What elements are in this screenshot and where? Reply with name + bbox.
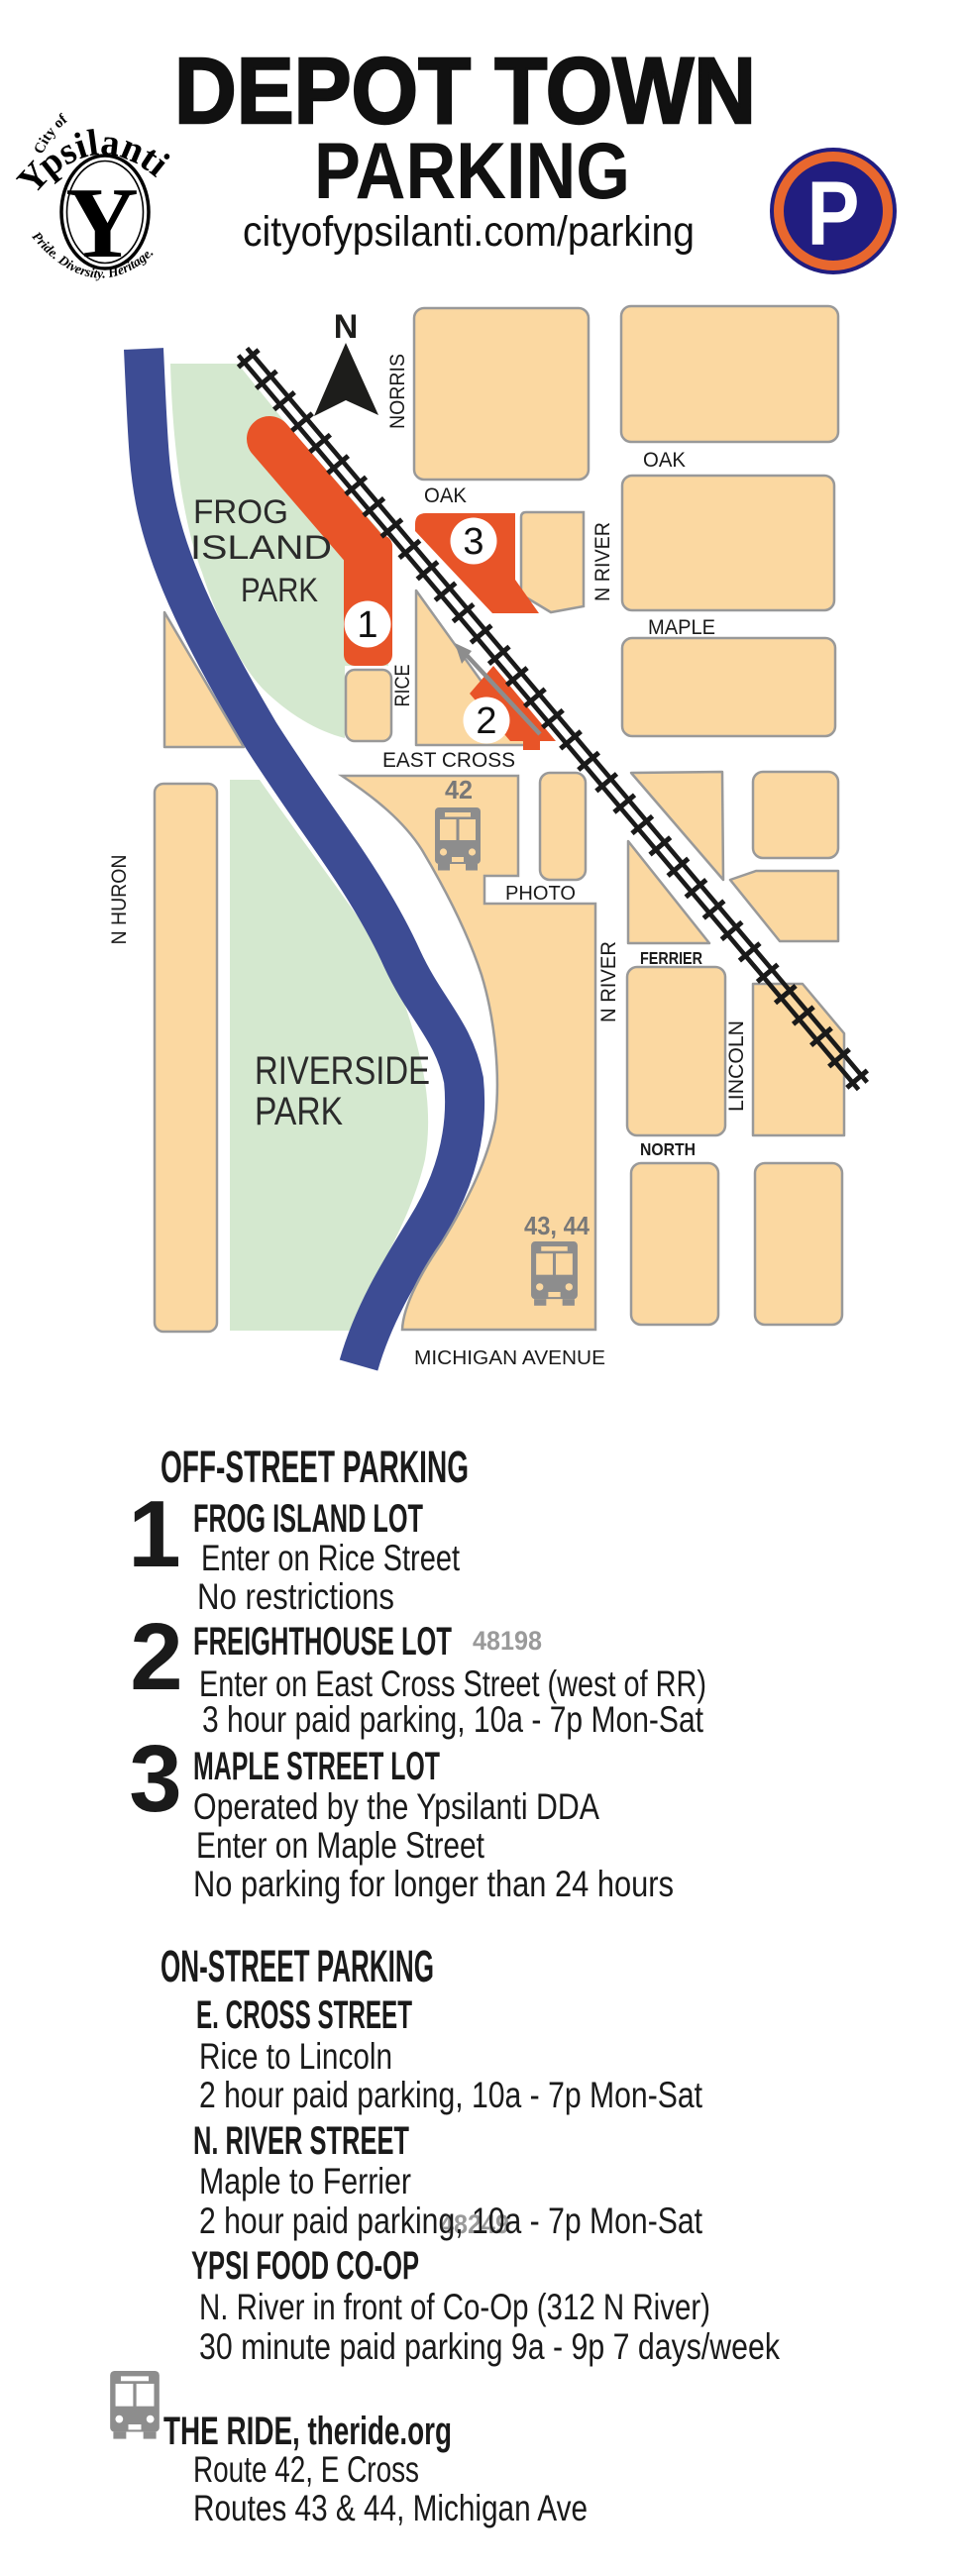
svg-text:N: N bbox=[334, 308, 359, 346]
svg-text:YPSI FOOD CO-OP: YPSI FOOD CO-OP bbox=[191, 2244, 419, 2288]
svg-text:FROG ISLAND LOT: FROG ISLAND LOT bbox=[193, 1497, 423, 1541]
svg-text:N RIVER: N RIVER bbox=[591, 522, 614, 601]
svg-text:N. River in front of Co-Op (31: N. River in front of Co-Op (312 N River) bbox=[199, 2287, 710, 2327]
svg-text:FREIGHTHOUSE LOT: FREIGHTHOUSE LOT bbox=[193, 1620, 452, 1664]
svg-text:3: 3 bbox=[129, 1726, 181, 1832]
svg-text:P: P bbox=[807, 163, 860, 265]
svg-text:RIVERSIDE: RIVERSIDE bbox=[255, 1049, 430, 1093]
svg-text:PARK: PARK bbox=[241, 572, 318, 609]
svg-text:FERRIER: FERRIER bbox=[640, 948, 702, 968]
svg-text:PHOTO: PHOTO bbox=[505, 883, 576, 905]
svg-text:N HURON: N HURON bbox=[108, 855, 131, 945]
svg-text:PARK: PARK bbox=[255, 1090, 343, 1133]
svg-text:ON-STREET PARKING: ON-STREET PARKING bbox=[161, 1941, 434, 1991]
svg-text:Enter on East Cross Street (we: Enter on East Cross Street (west of RR) bbox=[199, 1664, 706, 1704]
svg-text:MICHIGAN AVENUE: MICHIGAN AVENUE bbox=[414, 1346, 605, 1369]
svg-text:1: 1 bbox=[128, 1481, 180, 1587]
svg-text:No restrictions: No restrictions bbox=[197, 1576, 394, 1617]
svg-text:EAST CROSS: EAST CROSS bbox=[382, 749, 515, 772]
svg-text:Enter on Rice Street: Enter on Rice Street bbox=[201, 1538, 461, 1578]
svg-text:2: 2 bbox=[130, 1604, 182, 1710]
svg-text:Operated by the Ypsilanti DDA: Operated by the Ypsilanti DDA bbox=[193, 1786, 599, 1827]
svg-text:3 hour paid parking, 10a - 7p: 3 hour paid parking, 10a - 7p Mon-Sat bbox=[202, 1699, 704, 1740]
svg-text:43, 44: 43, 44 bbox=[524, 1211, 590, 1240]
svg-text:48198: 48198 bbox=[473, 1626, 542, 1656]
svg-text:OFF-STREET PARKING: OFF-STREET PARKING bbox=[161, 1442, 469, 1492]
svg-text:LINCOLN: LINCOLN bbox=[725, 1020, 748, 1112]
svg-text:OAK: OAK bbox=[643, 449, 686, 472]
svg-text:3: 3 bbox=[463, 521, 483, 563]
svg-text:MAPLE: MAPLE bbox=[648, 616, 715, 639]
svg-text:cityofypsilanti.com/parking: cityofypsilanti.com/parking bbox=[243, 208, 695, 256]
svg-text:FROG: FROG bbox=[193, 493, 288, 531]
svg-text:2: 2 bbox=[476, 700, 496, 742]
svg-text:30 minute paid parking 9a - 9p: 30 minute paid parking 9a - 9p 7 days/we… bbox=[199, 2326, 780, 2367]
svg-text:RICE: RICE bbox=[391, 665, 414, 707]
svg-text:2 hour paid parking, 10a - 7p: 2 hour paid parking, 10a - 7p Mon-Sat bbox=[199, 2075, 703, 2115]
svg-text:N RIVER: N RIVER bbox=[597, 941, 620, 1022]
svg-text:MAPLE STREET LOT: MAPLE STREET LOT bbox=[193, 1745, 440, 1788]
svg-text:NORRIS: NORRIS bbox=[386, 354, 409, 429]
svg-text:PARKING: PARKING bbox=[314, 127, 630, 216]
svg-text:N. RIVER STREET: N. RIVER STREET bbox=[193, 2119, 409, 2163]
svg-text:E. CROSS STREET: E. CROSS STREET bbox=[196, 1993, 412, 2037]
svg-text:THE RIDE, theride.org: THE RIDE, theride.org bbox=[163, 2410, 452, 2453]
svg-text:2 hour paid parking, 10a - 7p: 2 hour paid parking, 10a - 7p Mon-Sat bbox=[199, 2200, 703, 2241]
svg-text:NORTH: NORTH bbox=[640, 1139, 696, 1159]
svg-text:No parking for longer than 24: No parking for longer than 24 hours bbox=[193, 1864, 674, 1904]
svg-text:Route 42, E Cross: Route 42, E Cross bbox=[193, 2449, 419, 2490]
svg-text:42: 42 bbox=[445, 775, 473, 805]
svg-text:Routes 43 & 44, Michigan Ave: Routes 43 & 44, Michigan Ave bbox=[193, 2488, 588, 2528]
svg-text:Maple to Ferrier: Maple to Ferrier bbox=[199, 2161, 411, 2201]
svg-text:1: 1 bbox=[357, 604, 377, 646]
svg-text:Enter on Maple Street: Enter on Maple Street bbox=[196, 1825, 485, 1866]
svg-text:Y: Y bbox=[65, 167, 139, 279]
svg-text:OAK: OAK bbox=[424, 484, 467, 507]
svg-text:Rice to Lincoln: Rice to Lincoln bbox=[199, 2036, 392, 2077]
svg-text:ISLAND: ISLAND bbox=[190, 529, 332, 567]
